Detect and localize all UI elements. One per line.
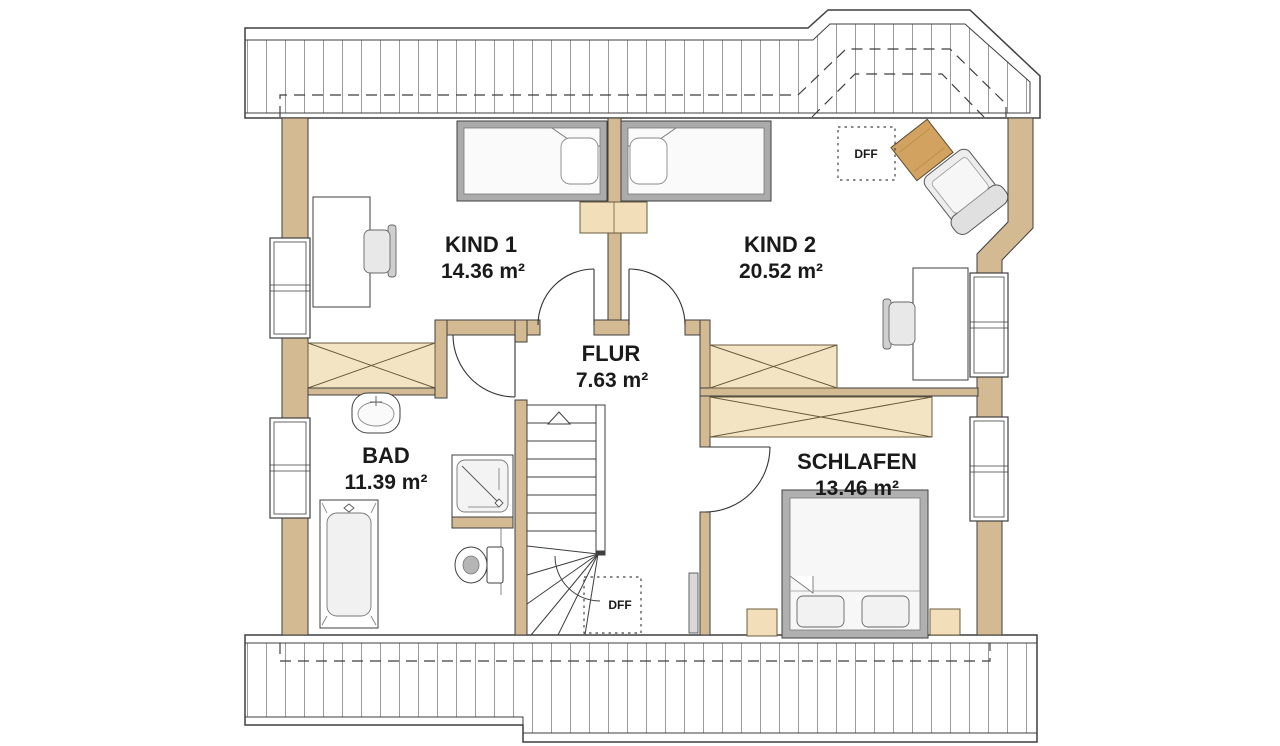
room-label-bad: BAD	[362, 443, 410, 468]
room-label-flur: FLUR	[582, 341, 641, 366]
bad-east-wall-upper	[435, 320, 447, 398]
washbasin	[352, 393, 400, 433]
window-schlafen-right	[970, 417, 1008, 521]
flur-north-wall-center	[594, 320, 629, 335]
door-kind1	[538, 269, 594, 325]
window-kind1-left	[270, 238, 310, 338]
roof-window-label: DFF	[608, 598, 631, 612]
room-area-bad: 11.39 m²	[345, 471, 428, 494]
toilet	[455, 528, 503, 595]
room-area-schlafen: 13.46 m²	[815, 477, 899, 500]
nightstand-schlafen-left	[747, 609, 777, 636]
schlafen-west-wall	[700, 512, 710, 635]
stair-direction-arrow	[548, 412, 570, 424]
wardrobe-schlafen	[710, 397, 932, 437]
nightstand-schlafen-right	[930, 609, 960, 635]
exterior-wall-left-upper	[282, 118, 308, 238]
bed-kind2	[621, 121, 771, 201]
room-label-schlafen: SCHLAFEN	[797, 449, 917, 474]
stair-treads	[527, 405, 600, 635]
radiator	[689, 573, 698, 633]
desk-chair-kind1	[364, 225, 396, 277]
wardrobe-kind2	[710, 345, 837, 388]
nightstand-kind-shared	[580, 202, 647, 233]
stair-west-wall	[515, 400, 527, 635]
desk-chair-kind2	[883, 299, 915, 349]
wardrobe-bad	[308, 343, 435, 395]
pillow	[862, 596, 909, 627]
kind2-west-wall	[700, 320, 710, 447]
door-kind2	[629, 269, 685, 325]
room-label-kind1: KIND 1	[445, 232, 517, 257]
room-area-flur: 7.63 m²	[576, 369, 648, 392]
bed-kind1	[457, 121, 607, 201]
door-bad	[453, 335, 515, 397]
shower-half-wall	[452, 517, 513, 528]
door-schlafen	[705, 447, 770, 512]
roof-window-label: DFF	[854, 147, 877, 161]
pillow	[561, 138, 598, 184]
flur-north-wall-step	[515, 320, 527, 342]
schlafen-north-wall	[700, 388, 978, 396]
room-label-kind2: KIND 2	[744, 232, 816, 257]
desk-kind1	[313, 197, 370, 307]
double-bed-schlafen	[782, 490, 928, 638]
bathtub	[320, 500, 378, 628]
pillow	[630, 138, 667, 184]
pillow	[797, 596, 844, 627]
exterior-wall-left-middle	[282, 338, 308, 418]
window-bad-left	[270, 418, 310, 518]
desk-kind2	[913, 268, 968, 380]
roof-overhang-bottom	[245, 635, 1037, 742]
roof-overhang-top	[245, 10, 1040, 118]
shower	[452, 455, 513, 517]
window-kind2-right	[970, 273, 1008, 377]
floor-plan: DFF DFF KIND 1 14.36 m² KIND 2 20.52 m² …	[0, 0, 1280, 746]
roof-window-marker-kind2: DFF	[838, 127, 895, 180]
staircase	[527, 405, 605, 635]
floor-plan-page: DFF DFF KIND 1 14.36 m² KIND 2 20.52 m² …	[0, 0, 1280, 746]
room-area-kind1: 14.36 m²	[441, 260, 525, 283]
exterior-wall-left-lower	[282, 518, 308, 635]
room-area-kind2: 20.52 m²	[739, 260, 823, 283]
